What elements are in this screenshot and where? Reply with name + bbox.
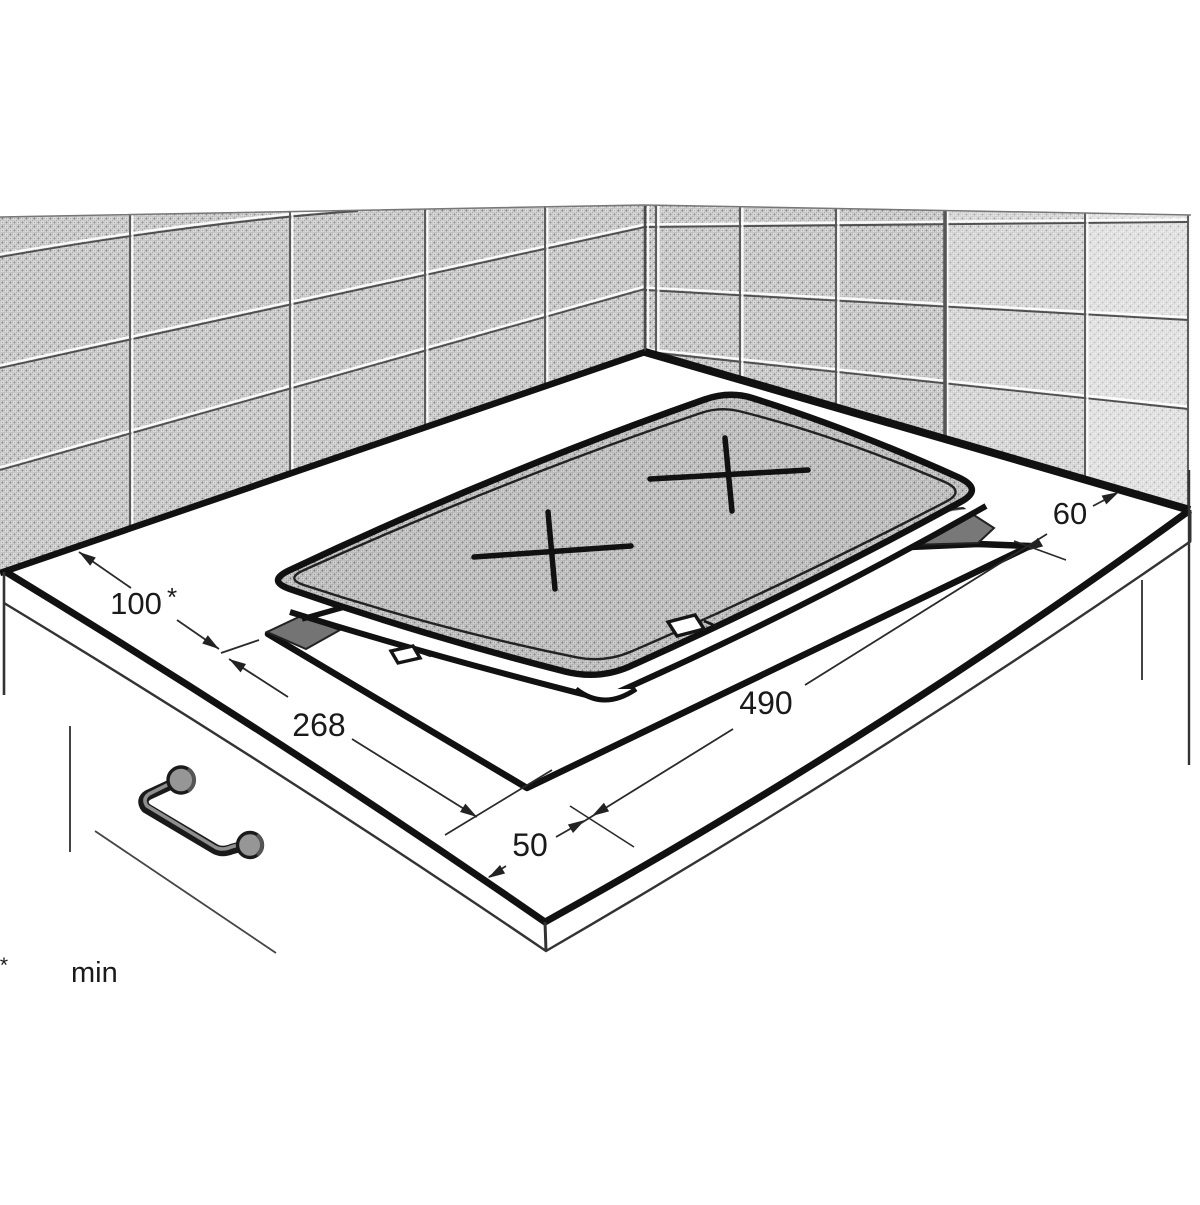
svg-text:60: 60 [1053,496,1087,531]
svg-text:50: 50 [512,827,548,863]
svg-text:100: 100 [110,586,162,621]
svg-text:min: min [71,957,118,989]
svg-text:268: 268 [292,707,345,743]
svg-text:*: * [167,582,177,612]
svg-text:490: 490 [739,685,792,721]
svg-text:*: * [0,954,8,977]
